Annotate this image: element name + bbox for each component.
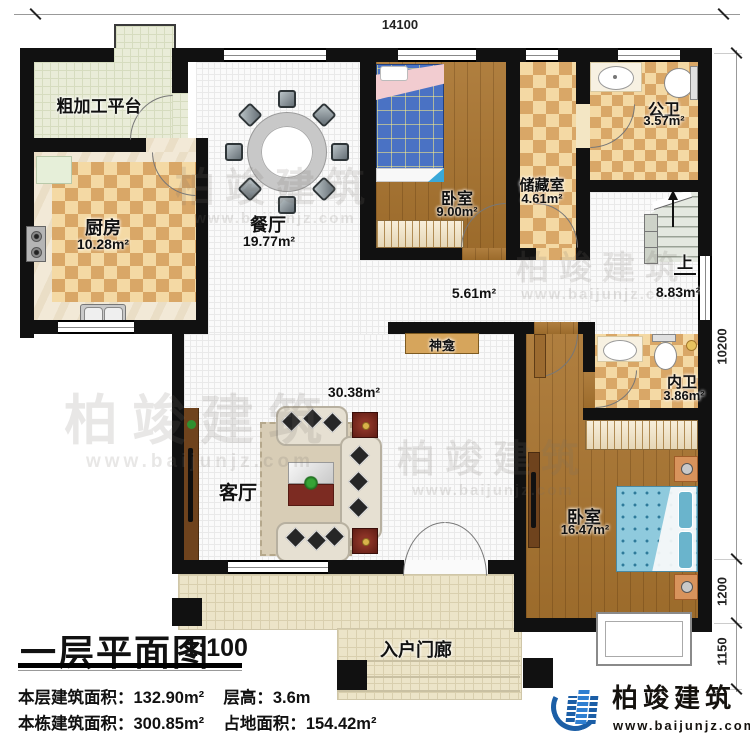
logo-website-text: www.baijunjz.com bbox=[613, 718, 750, 733]
plan-scale: 1:100 bbox=[184, 634, 248, 663]
label-shrine: 神龛 bbox=[405, 335, 479, 354]
master-entry-door-leaf bbox=[534, 334, 546, 378]
wall-segment bbox=[690, 618, 712, 632]
dining-chair bbox=[278, 90, 296, 108]
plan-title: 一层平面图 bbox=[20, 624, 210, 676]
wall-segment bbox=[576, 62, 590, 104]
wall-segment bbox=[506, 62, 520, 260]
logo-bar bbox=[587, 694, 598, 724]
stats-line-1: 本层建筑面积：132.90m² 层高：3.6m bbox=[18, 684, 310, 708]
right-dimension-lower: 1150 bbox=[715, 622, 730, 682]
stat-floor-area-label: 本层建筑面积： bbox=[18, 689, 134, 707]
wall-segment bbox=[328, 560, 404, 574]
title-underline-thin bbox=[18, 670, 242, 671]
stat-building-area-value: 300.85m² bbox=[134, 715, 205, 733]
logo-building-icon bbox=[550, 680, 606, 736]
tv-master bbox=[531, 472, 536, 528]
toilet-bowl bbox=[654, 342, 677, 370]
wall-segment bbox=[20, 48, 116, 62]
wall-segment bbox=[172, 560, 228, 574]
wall-segment bbox=[698, 48, 712, 632]
wall-segment bbox=[514, 334, 526, 632]
label-dining-area: 19.77m² bbox=[238, 233, 300, 249]
wall-segment bbox=[514, 618, 598, 632]
right-dimension-total: 10200 bbox=[715, 307, 730, 387]
label-bedroom-master-area: 16.47m² bbox=[554, 522, 616, 537]
label-inner-bath-area: 3.86m² bbox=[660, 388, 708, 403]
label-kitchen-area: 10.28m² bbox=[72, 236, 134, 252]
master-entry-gap bbox=[534, 322, 578, 334]
side-table-knob bbox=[362, 422, 370, 430]
bed-master-pillow bbox=[678, 531, 693, 569]
floor-plan-canvas: 14100 10200 1200 1150 bbox=[0, 0, 750, 743]
wall-segment bbox=[196, 138, 208, 334]
floor-porch-upper bbox=[178, 574, 522, 630]
kitchen-door-gap bbox=[146, 138, 196, 152]
logo-company-text: 柏竣建筑 bbox=[612, 684, 736, 713]
stair-hall-cabinet bbox=[644, 214, 658, 264]
storage-door-gap bbox=[536, 248, 576, 260]
inner-bath-door-gap bbox=[583, 372, 595, 408]
porch-pillar bbox=[172, 598, 202, 626]
window bbox=[58, 320, 134, 334]
label-living: 客厅 bbox=[212, 478, 264, 505]
wall-segment bbox=[590, 180, 712, 192]
nightstand-knob bbox=[681, 463, 693, 475]
plant-icon bbox=[187, 420, 196, 429]
porch-step-line bbox=[337, 690, 520, 692]
stat-height-value: 3.6m bbox=[273, 689, 311, 707]
stat-building-area-label: 本栋建筑面积： bbox=[18, 715, 134, 733]
nightstand-knob bbox=[681, 581, 693, 593]
label-storage-area: 4.61m² bbox=[516, 191, 568, 206]
wall-segment bbox=[360, 62, 376, 260]
window bbox=[398, 48, 476, 62]
bay-window-inner bbox=[605, 621, 683, 657]
toilet-tank bbox=[652, 334, 676, 342]
wall-segment bbox=[583, 334, 595, 372]
stove-burner bbox=[31, 231, 42, 242]
window bbox=[224, 48, 326, 62]
porch-pillar bbox=[523, 658, 553, 688]
bed-small-pillow bbox=[380, 66, 408, 81]
toilet-tank bbox=[690, 66, 698, 100]
bed-master-pillow bbox=[678, 491, 693, 529]
stat-height-label: 层高： bbox=[223, 689, 273, 707]
tv-living bbox=[188, 448, 193, 522]
stat-footprint-label: 占地面积： bbox=[223, 715, 306, 733]
right-dimension-upper: 1200 bbox=[715, 562, 730, 622]
side-table-knob bbox=[362, 538, 370, 546]
stats-line-2: 本栋建筑面积：300.85m² 占地面积：154.42m² bbox=[18, 710, 376, 734]
label-platform: 粗加工平台 bbox=[40, 92, 158, 117]
wall-segment bbox=[583, 408, 712, 420]
wall-segment bbox=[20, 48, 34, 338]
floor-platform-gap bbox=[114, 48, 172, 62]
dining-chair bbox=[331, 143, 349, 161]
porch-pillar bbox=[337, 660, 367, 690]
wall-segment bbox=[488, 560, 516, 574]
stat-footprint-value: 154.42m² bbox=[306, 715, 377, 733]
kitchen-window-counter bbox=[36, 156, 72, 184]
platform-door-gap bbox=[172, 93, 188, 140]
public-bath-door-gap bbox=[576, 104, 590, 148]
wall-segment bbox=[20, 138, 146, 152]
wall-segment bbox=[366, 248, 462, 260]
water-heater-icon bbox=[686, 340, 697, 351]
right-dimension-line bbox=[736, 50, 737, 692]
bedroom-small-door-gap bbox=[462, 248, 506, 260]
top-dimension-line bbox=[14, 14, 740, 15]
dining-table bbox=[248, 113, 326, 191]
wall-segment bbox=[172, 48, 188, 93]
top-dimension-label: 14100 bbox=[355, 17, 445, 32]
sink-drain bbox=[613, 75, 617, 79]
label-public-bath-area: 3.57m² bbox=[640, 113, 688, 128]
dining-chair bbox=[225, 143, 243, 161]
window bbox=[526, 48, 558, 62]
stair-up-arrow-stem bbox=[672, 199, 674, 227]
label-living-area: 30.38m² bbox=[314, 384, 394, 400]
label-porch: 入户门廊 bbox=[370, 636, 462, 662]
wall-segment bbox=[506, 248, 536, 260]
title-underline-thick bbox=[18, 663, 242, 668]
window bbox=[618, 48, 680, 62]
wardrobe-small-bedroom bbox=[376, 220, 464, 248]
sink-icon bbox=[603, 340, 637, 361]
wardrobe-master bbox=[585, 420, 698, 450]
company-logo: 柏竣建筑 www.baijunjz.com bbox=[550, 678, 746, 740]
bay-window bbox=[596, 612, 692, 666]
wall-segment bbox=[578, 322, 595, 334]
label-stair-up: 上 bbox=[674, 249, 696, 275]
window bbox=[228, 560, 328, 574]
label-corridor-area: 5.61m² bbox=[436, 285, 512, 301]
label-bedroom-small-area: 9.00m² bbox=[430, 204, 484, 219]
wall-segment bbox=[576, 148, 590, 260]
stove-burner bbox=[31, 247, 42, 258]
label-stair-hall-area: 8.83m² bbox=[640, 284, 716, 300]
wall-segment bbox=[172, 334, 184, 574]
stat-floor-area-value: 132.90m² bbox=[134, 689, 205, 707]
plant-icon bbox=[303, 475, 319, 491]
